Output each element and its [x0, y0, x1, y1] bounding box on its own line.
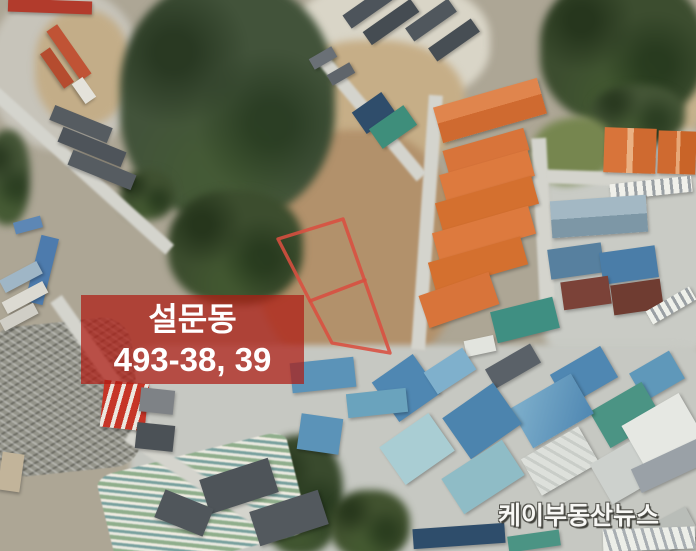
parcel-label-district: 설문동: [148, 299, 236, 339]
parcel-label-lot-numbers: 493-38, 39: [114, 339, 272, 381]
watermark-text: 케이부동산뉴스: [498, 496, 659, 532]
parcel-label-box: 설문동 493-38, 39: [81, 295, 304, 384]
parcel-outline: [0, 0, 696, 551]
aerial-photo: 설문동 493-38, 39 케이부동산뉴스: [0, 0, 696, 551]
parcel-divider-line: [310, 280, 365, 301]
